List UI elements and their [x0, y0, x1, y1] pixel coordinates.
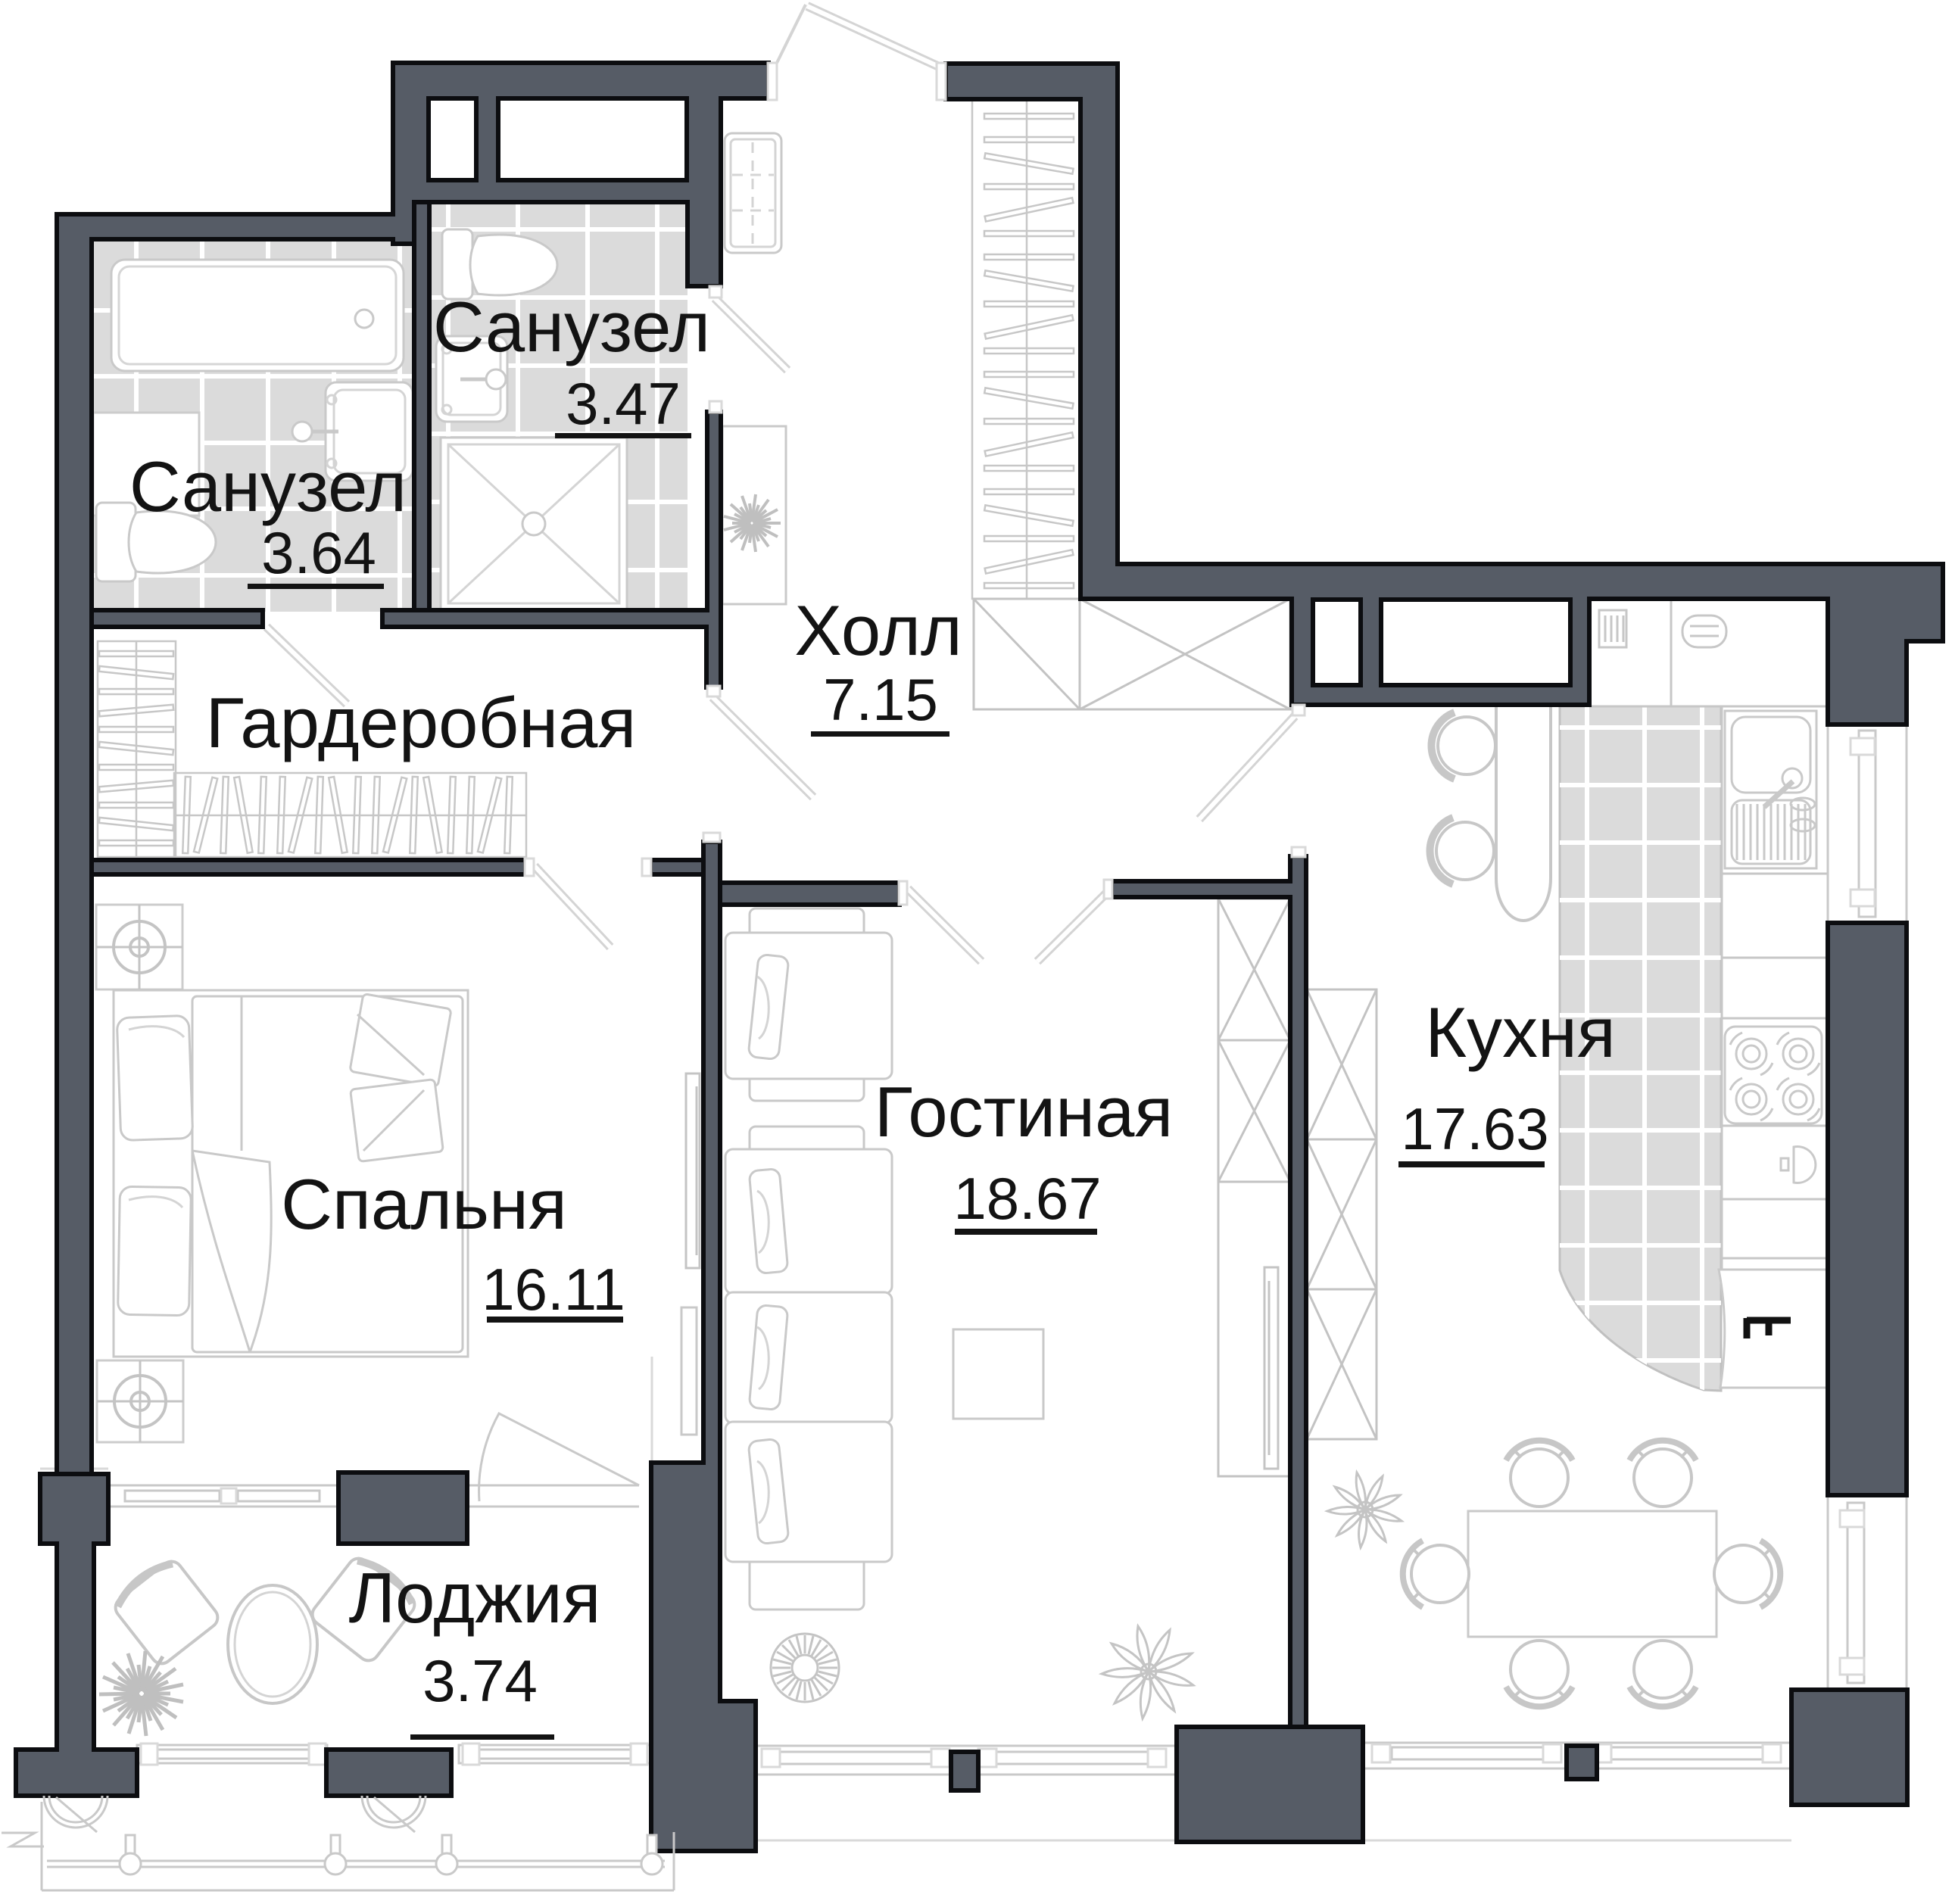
svg-text:Санузел: Санузел	[129, 447, 407, 526]
svg-text:Спальня: Спальня	[281, 1164, 567, 1244]
svg-text:3.74: 3.74	[422, 1647, 538, 1714]
svg-text:Холл: Холл	[794, 591, 962, 670]
svg-text:16.11: 16.11	[482, 1256, 625, 1323]
svg-text:17.63: 17.63	[1401, 1095, 1548, 1162]
svg-text:7.15: 7.15	[823, 666, 938, 733]
svg-text:3.47: 3.47	[566, 370, 681, 437]
svg-text:3.64: 3.64	[261, 519, 376, 586]
svg-text:Санузел: Санузел	[433, 287, 710, 366]
svg-text:Гардеробная: Гардеробная	[206, 683, 637, 762]
svg-text:Лоджия: Лоджия	[348, 1558, 600, 1638]
svg-text:Гостиная: Гостиная	[875, 1072, 1174, 1151]
svg-text:Кухня: Кухня	[1425, 993, 1616, 1072]
svg-text:18.67: 18.67	[953, 1165, 1101, 1232]
